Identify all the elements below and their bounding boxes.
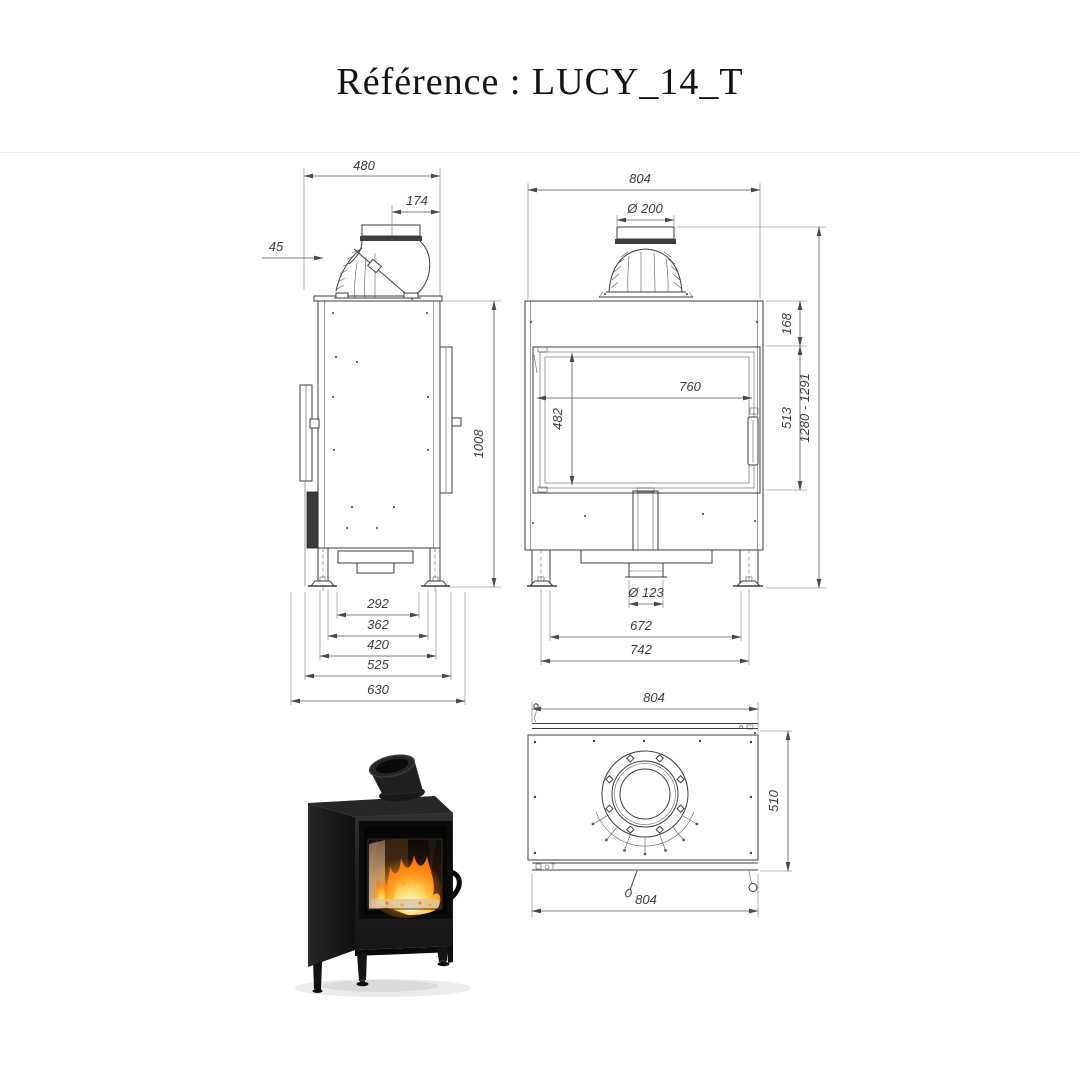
top-body xyxy=(528,704,758,898)
dim-side-480: 480 xyxy=(353,158,375,173)
dim-top-804-front: 804 xyxy=(635,892,657,907)
ember-bed xyxy=(371,899,439,908)
dim-side-174: 174 xyxy=(406,193,428,208)
hook-icon xyxy=(535,708,537,722)
dim-front-168: 168 xyxy=(779,312,794,334)
side-legs xyxy=(308,548,450,591)
dim-front-804-top: 804 xyxy=(629,171,651,186)
strap-hatching xyxy=(611,252,681,288)
dim-top-804-back: 804 xyxy=(643,690,665,705)
front-body xyxy=(525,301,763,577)
dim-top-510: 510 xyxy=(766,789,781,811)
side-body xyxy=(300,296,461,586)
strap-rays xyxy=(592,816,699,855)
strap-hatching xyxy=(337,250,359,289)
front-view-dimensions: 804 Ø 200 168 513 1280 - 1291 760 482 xyxy=(528,171,826,665)
top-view: 804 510 804 xyxy=(528,690,792,917)
dim-side-525: 525 xyxy=(367,657,389,672)
front-view: 804 Ø 200 168 513 1280 - 1291 760 482 xyxy=(525,171,826,665)
damper-pin xyxy=(630,871,637,890)
stove-leg xyxy=(437,947,448,962)
flue-collar xyxy=(592,751,699,855)
side-view: 480 174 45 1008 292 362 420 xyxy=(262,158,501,705)
chain-icon xyxy=(749,871,752,883)
top-view-dimensions: 804 510 804 xyxy=(532,690,792,917)
ash-door xyxy=(307,492,318,548)
dim-side-420: 420 xyxy=(367,637,389,652)
stove-leg xyxy=(357,953,367,981)
stove-door xyxy=(359,821,452,919)
dim-side-1008: 1008 xyxy=(471,429,486,459)
dim-side-362: 362 xyxy=(367,617,389,632)
collar-bolts xyxy=(606,755,684,833)
air-duct xyxy=(633,491,658,550)
front-flue-dome xyxy=(599,227,693,297)
dim-side-630: 630 xyxy=(367,682,389,697)
dim-front-672: 672 xyxy=(630,618,652,633)
dim-front-air-inlet: Ø 123 xyxy=(627,585,664,600)
spec-sheet: Référence : LUCY_14_T xyxy=(0,0,1080,1080)
screw-dots xyxy=(332,312,429,529)
dim-front-height-range: 1280 - 1291 xyxy=(797,373,812,442)
side-flue-elbow xyxy=(334,225,430,300)
stove-side xyxy=(308,803,355,967)
dim-front-513: 513 xyxy=(779,406,794,428)
dim-front-flue-diameter: Ø 200 xyxy=(626,201,663,216)
air-inlet-tube xyxy=(629,563,663,577)
door-frame xyxy=(533,347,760,493)
dim-side-45: 45 xyxy=(269,239,284,254)
technical-drawing: 480 174 45 1008 292 362 420 xyxy=(0,0,1080,1080)
product-photo xyxy=(295,751,471,997)
flue-pipe xyxy=(367,751,425,803)
dim-front-482: 482 xyxy=(550,407,565,429)
dim-front-760: 760 xyxy=(679,379,701,394)
dim-front-742: 742 xyxy=(630,642,652,657)
dim-side-292: 292 xyxy=(366,596,389,611)
